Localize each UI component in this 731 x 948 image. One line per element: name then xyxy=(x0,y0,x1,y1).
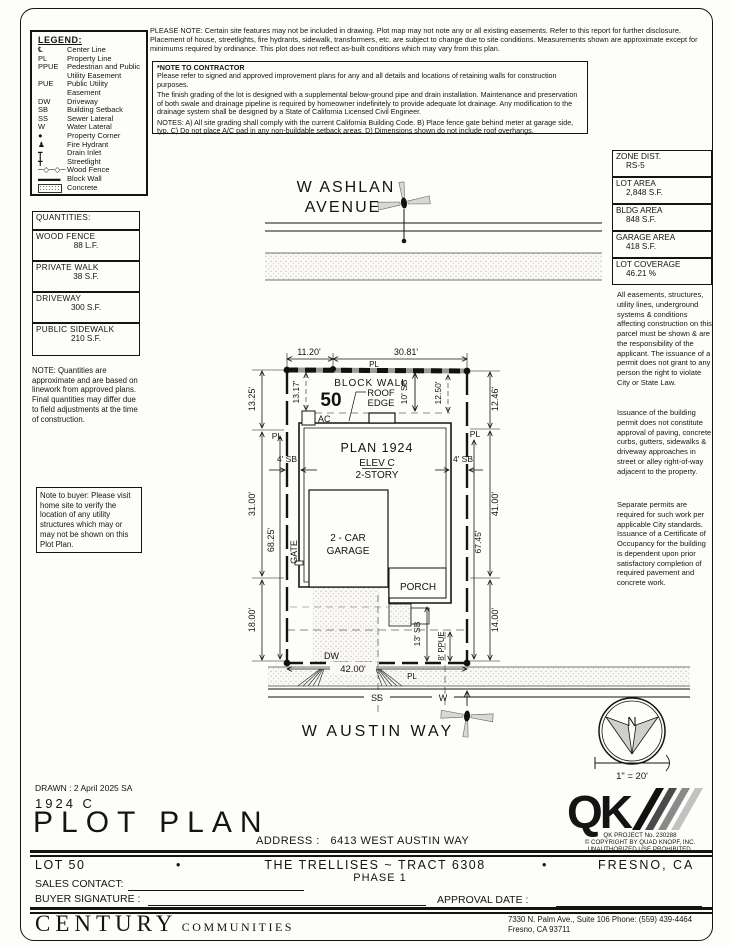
property-corner-nw xyxy=(284,367,291,374)
quantity-private-walk: PRIVATE WALK 38 S.F. xyxy=(32,261,140,292)
dim-rear-sb: 10' SB xyxy=(399,379,409,404)
gate-label: GATE xyxy=(289,540,299,564)
pl-label-left: PL xyxy=(272,431,283,441)
garage-label-1: 2 - CAR xyxy=(330,533,366,544)
water-label: W xyxy=(439,693,448,703)
builder-name-primary: CENTURY xyxy=(35,911,177,936)
property-corner-n xyxy=(330,366,336,372)
builder-logo: CENTURY COMMUNITIES xyxy=(35,911,294,937)
roof-edge-label-2: EDGE xyxy=(368,398,395,409)
qk-logo: QK QK PROJECT No. 230288 © COPYRIGHT BY … xyxy=(566,780,714,852)
plan-name: PLAN 1924 xyxy=(341,441,414,455)
phase-label: PHASE 1 xyxy=(300,872,460,884)
lot-number: 50 xyxy=(320,390,341,411)
scale-bar: 1" = 20' xyxy=(595,755,670,782)
address-label: ADDRESS : xyxy=(256,835,320,847)
ac-pad xyxy=(389,604,411,626)
dim-right-overall: 67.45' xyxy=(473,530,483,553)
concrete-icon xyxy=(38,184,67,193)
legend-box: LEGEND: ℄Center Line PLProperty Line PPU… xyxy=(30,30,148,196)
bullet-1: • xyxy=(176,858,182,872)
quantity-wood-fence: WOOD FENCE 88 L.F. xyxy=(32,230,140,261)
qk-copyright: © COPYRIGHT BY QUAD KNOPF, INC. xyxy=(585,839,696,846)
pl-label-right: PL xyxy=(470,429,481,439)
step-pad xyxy=(411,608,429,624)
contractor-note-box: *NOTE TO CONTRACTOR Please refer to sign… xyxy=(152,61,588,134)
sales-contact-label: SALES CONTACT: xyxy=(35,878,124,890)
site-plan-drawing: W ASHLAN AVENUE xyxy=(150,140,725,790)
property-corner-se xyxy=(464,660,471,667)
plot-plan-sheet: LEGEND: ℄Center Line PLProperty Line PPU… xyxy=(0,0,731,948)
pue-icon: PUE xyxy=(38,80,67,89)
dim-right-bottom: 14.00' xyxy=(490,608,500,633)
dim-ppue: 8' PPUE xyxy=(437,631,446,660)
ac-label: AC xyxy=(318,414,331,424)
ppue-icon: PPUE xyxy=(38,63,67,72)
dim-rear-left: 13.17' xyxy=(291,380,301,403)
please-note-text: PLEASE NOTE: Certain site features may n… xyxy=(150,27,712,54)
city-label: FRESNO, CA xyxy=(598,858,710,872)
lot-label: LOT 50 xyxy=(35,858,85,872)
property-corner-ne xyxy=(464,368,471,375)
qk-wordmark: QK xyxy=(567,786,633,838)
builder-address-line1: 7330 N. Palm Ave., Suite 106 Phone: (559… xyxy=(508,915,708,925)
quantity-driveway: DRIVEWAY 300 S.F. xyxy=(32,292,140,323)
quantity-public-sidewalk: PUBLIC SIDEWALK 210 S.F. xyxy=(32,323,140,356)
dim-frontage: 42.00' xyxy=(340,664,366,675)
dim-sb-right: 4' SB xyxy=(453,454,473,464)
tract-label: THE TRELLISES ~ TRACT 6308 xyxy=(232,858,518,872)
dim-rear-right: 12.50' xyxy=(433,381,443,404)
quantities-note: NOTE: Quantities are approximate and are… xyxy=(32,366,144,424)
builder-address: 7330 N. Palm Ave., Suite 106 Phone: (559… xyxy=(508,915,708,935)
block-wall-icon: ▬▬▬ xyxy=(38,175,67,184)
pl-label-front: PL xyxy=(407,672,417,681)
address-value: 6413 WEST AUSTIN WAY xyxy=(330,835,469,847)
street-ashlan-line2: AVENUE xyxy=(305,199,382,216)
approval-date-label: APPROVAL DATE : xyxy=(437,894,528,906)
porch-label: PORCH xyxy=(400,582,436,593)
contractor-note-p3: NOTES: A) All site grading shall comply … xyxy=(157,119,583,136)
garage-label-2: GARAGE xyxy=(327,546,370,557)
page-title: PLOT PLAN xyxy=(33,806,270,840)
street-austin-label: W AUSTIN WAY xyxy=(302,723,454,740)
quantities-title-box: QUANTITIES: xyxy=(32,211,140,230)
dim-front-right: 30.81' xyxy=(394,347,419,357)
qk-project-number: QK PROJECT No. 230288 xyxy=(603,832,677,839)
dim-right-top: 12.46' xyxy=(490,387,500,412)
legend-title: LEGEND: xyxy=(38,35,146,45)
house-bump xyxy=(369,413,395,423)
dim-left-top: 13.25' xyxy=(247,387,257,412)
approval-date-input-line[interactable] xyxy=(556,894,702,907)
buyer-note-box: Note to buyer: Please visit home site to… xyxy=(36,487,142,553)
address-line: ADDRESS : 6413 WEST AUSTIN WAY xyxy=(256,835,469,847)
builder-address-line2: Fresno, CA 93711 xyxy=(508,925,708,935)
sales-contact-input-line[interactable] xyxy=(128,878,304,891)
driveway-label: DW xyxy=(324,651,339,661)
elevation-label: ELEV C xyxy=(359,458,395,469)
qk-stripes xyxy=(632,788,703,830)
driveway-surface xyxy=(312,587,380,663)
dim-left-bottom: 18.00' xyxy=(247,608,257,633)
dim-left-mid: 31.00' xyxy=(247,492,257,517)
stories-label: 2-STORY xyxy=(356,470,399,481)
ashlan-sidewalk xyxy=(265,253,602,280)
dim-front-sb: 13' SB xyxy=(412,621,422,646)
north-arrow: N xyxy=(599,698,665,764)
pl-label-top: PL xyxy=(369,360,379,369)
dim-right-mid: 41.00' xyxy=(490,492,500,517)
contractor-note-p1: Please refer to signed and approved impr… xyxy=(157,72,583,89)
property-corner-sw xyxy=(284,660,291,667)
dim-left-overall: 68.25' xyxy=(266,528,276,553)
legend-item-concrete: Concrete xyxy=(38,184,146,193)
sewer-label: SS xyxy=(371,693,383,703)
bullet-2: • xyxy=(542,858,548,872)
roof-edge-leader xyxy=(349,392,366,421)
ac-unit xyxy=(302,411,315,425)
builder-name-secondary: COMMUNITIES xyxy=(182,920,294,934)
drawn-date: DRAWN : 2 April 2025 SA xyxy=(35,783,132,793)
street-ashlan-line1: W ASHLAN xyxy=(297,179,396,196)
contractor-note-p2: The finish grading of the lot is designe… xyxy=(157,91,583,116)
north-label: N xyxy=(627,714,636,729)
dim-front-left: 11.20' xyxy=(297,347,321,357)
buyer-signature-label: BUYER SIGNATURE : xyxy=(35,893,140,905)
buyer-signature-input-line[interactable] xyxy=(148,893,426,906)
divider-rule-top xyxy=(30,850,712,857)
